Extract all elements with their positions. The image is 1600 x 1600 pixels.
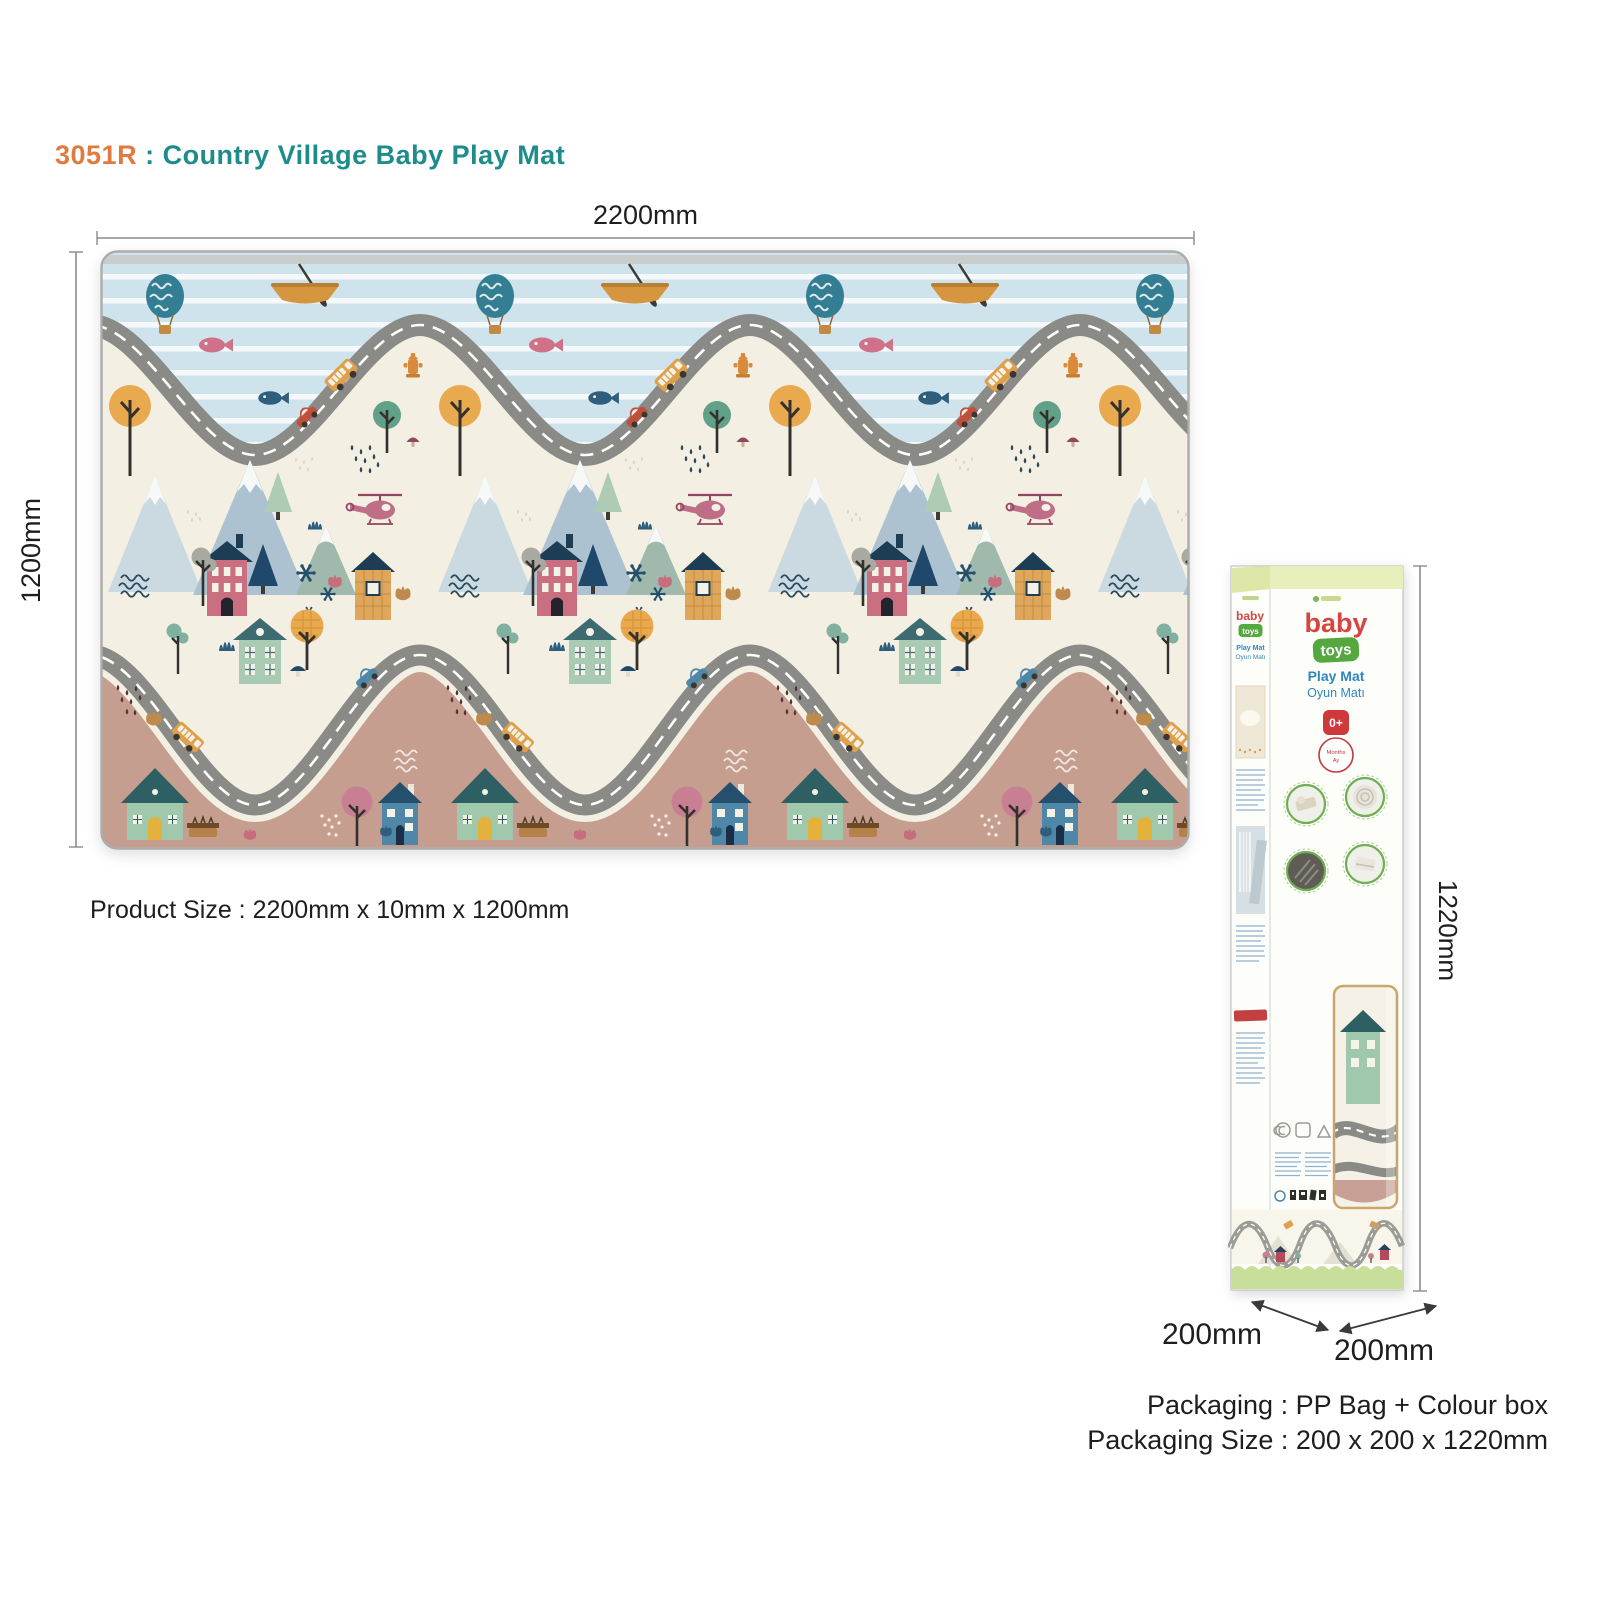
side-product-line1: Play Mat — [1236, 645, 1265, 652]
packaging-line1: Packaging : PP Bag + Colour box — [1087, 1388, 1548, 1423]
mat-height-dim-line — [58, 246, 94, 854]
box-width-label: 200mm — [1334, 1334, 1434, 1367]
box-bottom-band — [1230, 1210, 1403, 1289]
front-product-line1: Play Mat — [1308, 668, 1365, 684]
box-depth-label: 200mm — [1162, 1318, 1262, 1351]
feature-circle-4 — [1343, 842, 1387, 886]
brand-mark — [1313, 596, 1319, 602]
packaging-line2: Packaging Size : 200 x 200 x 1220mm — [1087, 1423, 1548, 1458]
feature-circle-3 — [1284, 849, 1328, 893]
box-base-dims: 200mm 200mm — [1100, 1282, 1590, 1392]
box-depth-dim-line — [1252, 1302, 1328, 1330]
play-mat-illustration — [100, 250, 1190, 850]
packaging-box-illustration: baby toys Play Mat Oyun Matı — [1228, 558, 1406, 1296]
spec-sheet: 3051R : Country Village Baby Play Mat 22… — [0, 0, 1600, 1600]
page-title: 3051R : Country Village Baby Play Mat — [55, 140, 565, 171]
side-brand-toys: toys — [1242, 627, 1259, 636]
mat-height-dim: 1200mm — [8, 250, 56, 850]
brand-mark — [1242, 596, 1259, 600]
product-code: 3051R — [55, 140, 137, 170]
side-red-banner — [1234, 1009, 1267, 1021]
front-brand-baby: baby — [1304, 608, 1367, 638]
box-top-front — [1270, 566, 1403, 589]
title-separator: : — [137, 140, 163, 170]
product-size-label: Product Size : 2200mm x 10mm x 1200mm — [90, 896, 569, 925]
front-product-line2: Oyun Matı — [1307, 686, 1365, 700]
age-unit2: Ay — [1333, 758, 1340, 764]
feature-circle-2 — [1343, 775, 1387, 819]
front-brand-toys: toys — [1320, 641, 1352, 660]
box-width-dim-line — [1340, 1306, 1436, 1331]
side-product-line2: Oyun Matı — [1236, 654, 1266, 661]
packaging-info: Packaging : PP Bag + Colour box Packagin… — [1087, 1388, 1548, 1458]
die-cut-window — [1332, 986, 1400, 1208]
box-height-dim-line — [1406, 558, 1438, 1298]
mat-top-edge — [100, 255, 1190, 264]
age-unit1: Months — [1326, 750, 1345, 756]
age-number: 0+ — [1329, 716, 1343, 730]
mat-height-label: 1200mm — [17, 497, 48, 602]
box-top-side — [1231, 566, 1270, 593]
side-brand-baby: baby — [1236, 609, 1264, 623]
product-name: Country Village Baby Play Mat — [163, 140, 566, 170]
feature-circle-1 — [1284, 782, 1328, 826]
